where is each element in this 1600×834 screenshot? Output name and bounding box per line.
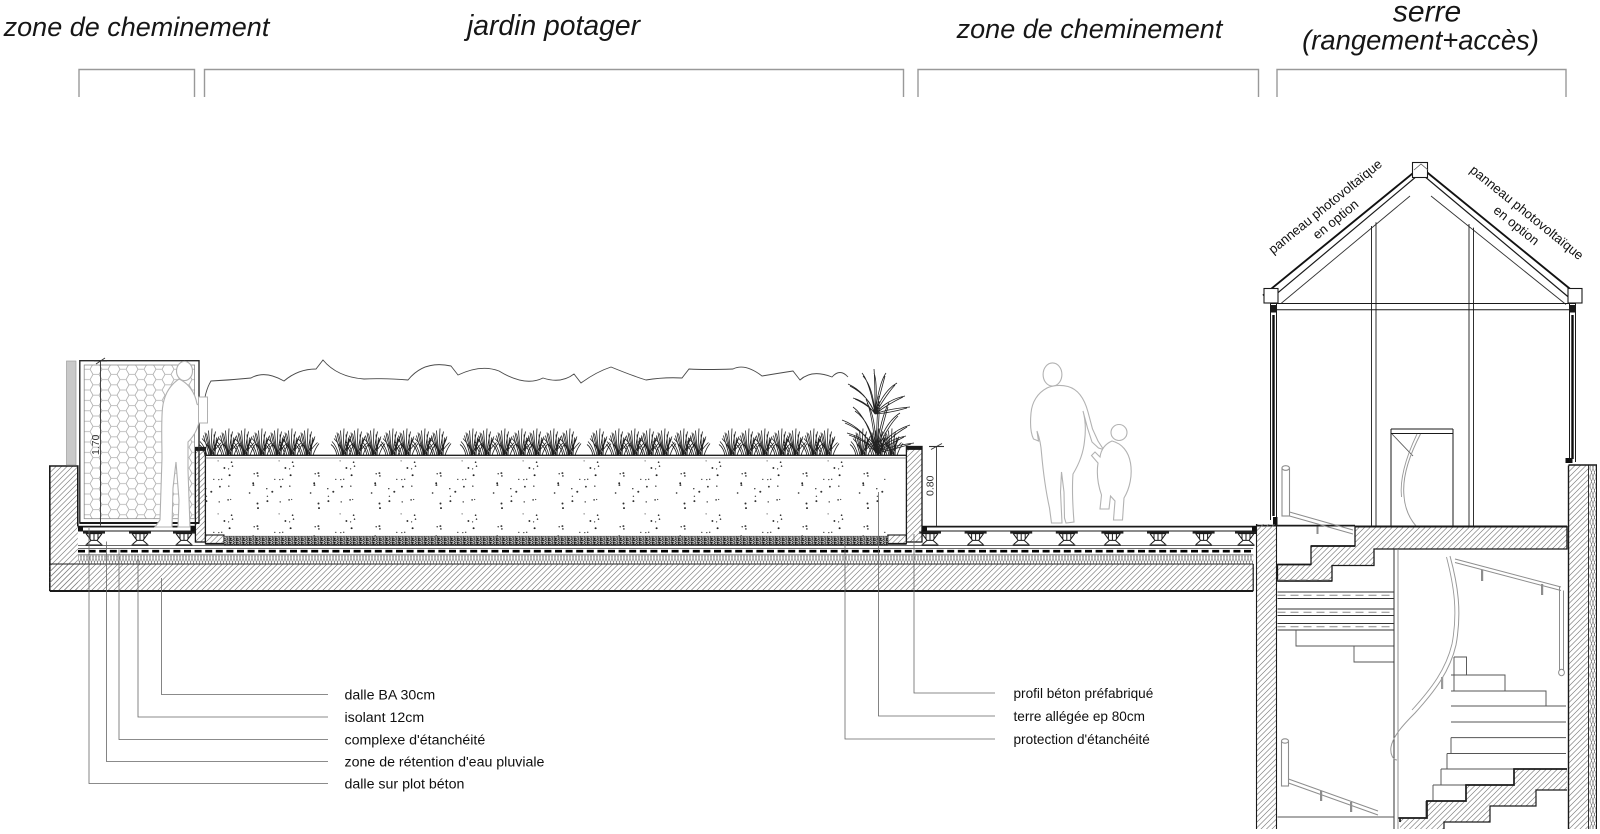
svg-text:0.80: 0.80 — [925, 475, 937, 496]
svg-text:(rangement+accès): (rangement+accès) — [1302, 25, 1539, 56]
svg-text:dalle BA 30cm: dalle BA 30cm — [345, 688, 436, 704]
svg-text:jardin potager: jardin potager — [463, 9, 642, 41]
svg-text:1.70: 1.70 — [90, 434, 102, 455]
svg-text:panneau photovoltaïque: panneau photovoltaïque — [1467, 162, 1586, 263]
svg-text:dalle sur plot béton: dalle sur plot béton — [345, 777, 465, 793]
svg-text:isolant 12cm: isolant 12cm — [345, 710, 425, 726]
svg-text:terre allégée ep 80cm: terre allégée ep 80cm — [1014, 709, 1145, 724]
svg-text:zone de rétention d'eau pluvia: zone de rétention d'eau pluviale — [345, 755, 545, 771]
svg-text:panneau photovoltaïque: panneau photovoltaïque — [1265, 156, 1384, 257]
svg-text:protection d'étanchéité: protection d'étanchéité — [1014, 732, 1150, 747]
svg-text:profil béton préfabriqué: profil béton préfabriqué — [1014, 686, 1154, 701]
svg-text:zone de cheminement: zone de cheminement — [956, 14, 1224, 44]
svg-text:complexe d'étanchéité: complexe d'étanchéité — [345, 733, 486, 749]
svg-text:zone de cheminement: zone de cheminement — [3, 12, 271, 42]
